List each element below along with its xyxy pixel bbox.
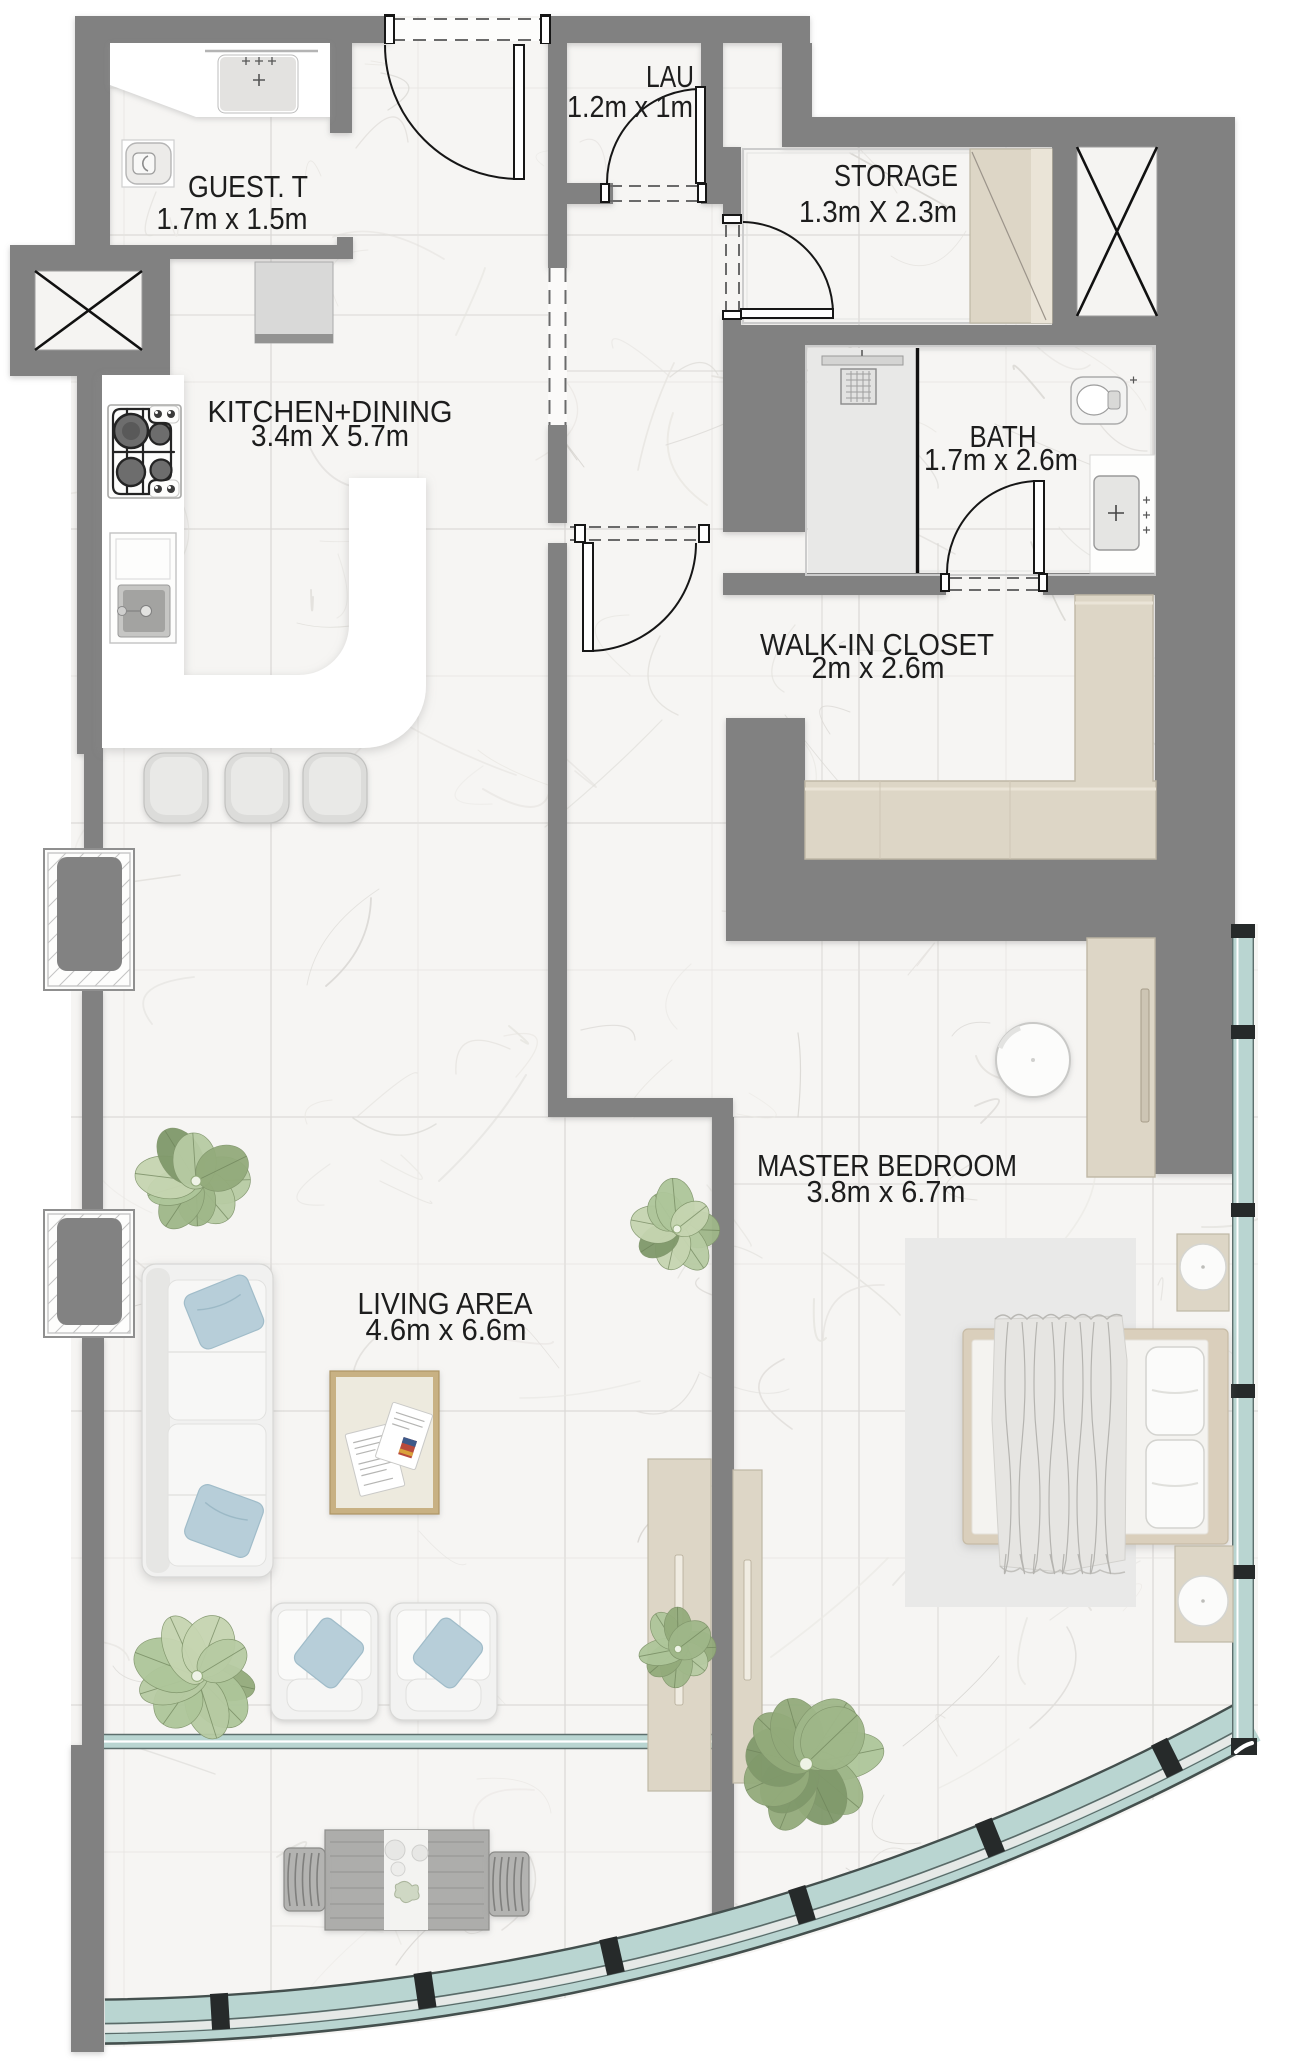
- svg-text:1.7m x 1.5m: 1.7m x 1.5m: [157, 201, 308, 236]
- svg-text:3.8m x 6.7m: 3.8m x 6.7m: [807, 1174, 966, 1209]
- svg-text:STORAGE: STORAGE: [834, 158, 958, 193]
- svg-text:1.7m x 2.6m: 1.7m x 2.6m: [924, 442, 1078, 477]
- svg-text:1.2m x 1m: 1.2m x 1m: [567, 89, 693, 124]
- svg-text:4.6m x 6.6m: 4.6m x 6.6m: [366, 1312, 527, 1347]
- svg-text:1.3m X 2.3m: 1.3m X 2.3m: [799, 194, 957, 229]
- svg-text:GUEST. T: GUEST. T: [188, 169, 308, 204]
- svg-text:3.4m X 5.7m: 3.4m X 5.7m: [251, 418, 409, 453]
- svg-text:2m x 2.6m: 2m x 2.6m: [812, 650, 945, 685]
